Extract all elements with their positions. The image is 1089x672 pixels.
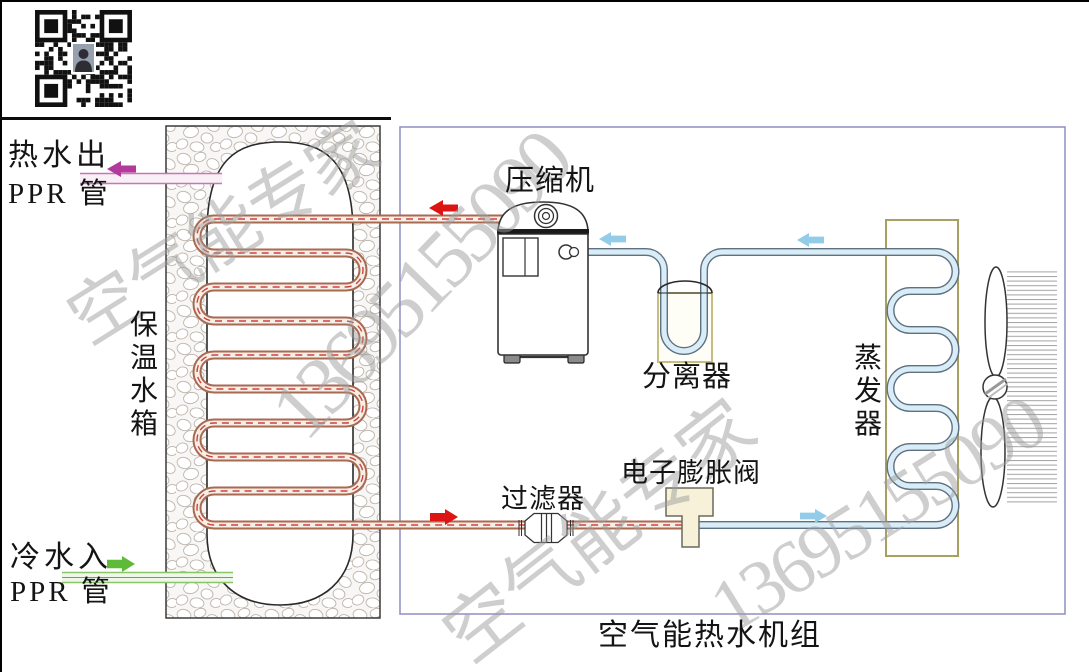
evaporator-to-separator-arrow [797, 233, 824, 247]
compressor-label: 压缩机 [505, 165, 595, 198]
fan-blade-bottom [981, 397, 1005, 507]
fan [981, 267, 1057, 507]
separator-label: 分离器 [642, 361, 732, 394]
qr-center-photo [71, 42, 96, 74]
compressor [497, 202, 589, 363]
image-border-top [0, 0, 1089, 2]
tank-vessel [207, 142, 353, 605]
scan-line-artifact [0, 117, 391, 120]
filter [519, 514, 573, 543]
hot-water-out-label: 热水出 [8, 139, 110, 174]
person-icon [73, 44, 94, 72]
compressor-terminal-box [503, 238, 538, 276]
evaporator-box [886, 220, 958, 556]
compressor-discharge-arrow [429, 200, 458, 216]
expansion-valve-label: 电子膨胀阀 [621, 458, 761, 489]
cold-water-in-label: 冷水入 [10, 541, 112, 576]
fan-airflow-lines [1007, 270, 1057, 506]
fan-blade-top [985, 267, 1007, 377]
hot-water-ppr-label: PPR 管 [8, 178, 111, 211]
unit-enclosure-box [400, 127, 1065, 614]
evaporator-label: 蒸发器 [850, 342, 886, 441]
cold-water-ppr-label: PPR 管 [10, 576, 113, 609]
suction-to-compressor-arrow [599, 232, 626, 246]
diagram-canvas: 空气能专家 13695155090 空气能专家 13695155090 热水出 … [0, 0, 1089, 672]
qr-code [35, 10, 132, 107]
expansion-to-evaporator-arrow [800, 509, 827, 523]
heat-pump-diagram [0, 0, 1089, 672]
expansion-valve [666, 488, 713, 547]
tank-label: 保温水箱 [126, 309, 162, 441]
unit-title: 空气能热水机组 [560, 619, 860, 654]
filter-label: 过滤器 [501, 484, 585, 515]
image-border-left [0, 0, 2, 672]
